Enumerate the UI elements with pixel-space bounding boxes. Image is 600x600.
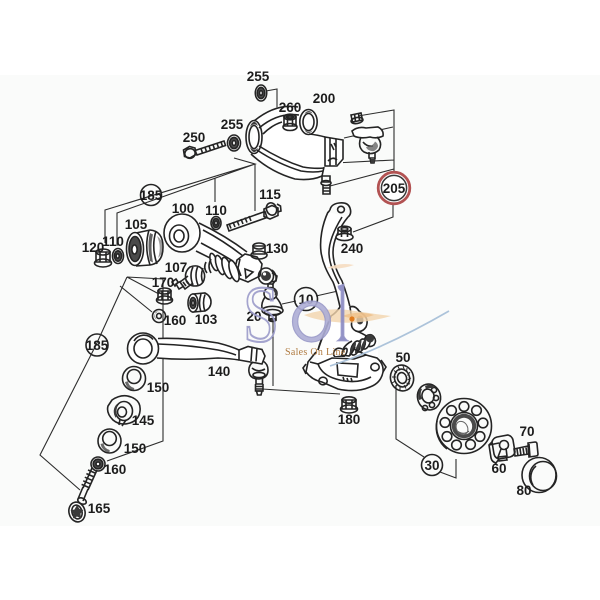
svg-text:185: 185 [140, 188, 163, 203]
svg-text:170: 170 [152, 275, 175, 290]
svg-text:200: 200 [313, 91, 336, 106]
svg-text:240: 240 [341, 241, 364, 256]
svg-text:205: 205 [383, 181, 406, 196]
svg-text:100: 100 [172, 201, 195, 216]
svg-text:140: 140 [208, 364, 231, 379]
svg-text:80: 80 [516, 483, 531, 498]
svg-text:145: 145 [132, 413, 155, 428]
svg-text:105: 105 [125, 217, 148, 232]
svg-text:165: 165 [88, 501, 111, 516]
svg-text:Sales On Line: Sales On Line [285, 347, 346, 358]
svg-text:103: 103 [195, 312, 218, 327]
svg-text:250: 250 [183, 130, 206, 145]
svg-text:107: 107 [165, 260, 188, 275]
svg-text:160: 160 [104, 462, 127, 477]
svg-text:120: 120 [82, 240, 105, 255]
svg-text:255: 255 [247, 69, 270, 84]
svg-text:150: 150 [147, 380, 170, 395]
svg-text:185: 185 [86, 338, 109, 353]
svg-text:30: 30 [424, 458, 439, 473]
svg-text:110: 110 [102, 234, 124, 249]
svg-text:115: 115 [259, 187, 281, 202]
svg-text:S: S [243, 270, 279, 359]
svg-text:70: 70 [519, 424, 534, 439]
svg-text:60: 60 [491, 461, 506, 476]
svg-text:50: 50 [395, 350, 410, 365]
svg-text:255: 255 [221, 117, 244, 132]
svg-text:160: 160 [164, 313, 187, 328]
svg-text:110: 110 [205, 203, 227, 218]
svg-text:150: 150 [124, 441, 147, 456]
svg-text:130: 130 [266, 241, 289, 256]
svg-text:260: 260 [279, 100, 302, 115]
svg-text:180: 180 [338, 412, 361, 427]
